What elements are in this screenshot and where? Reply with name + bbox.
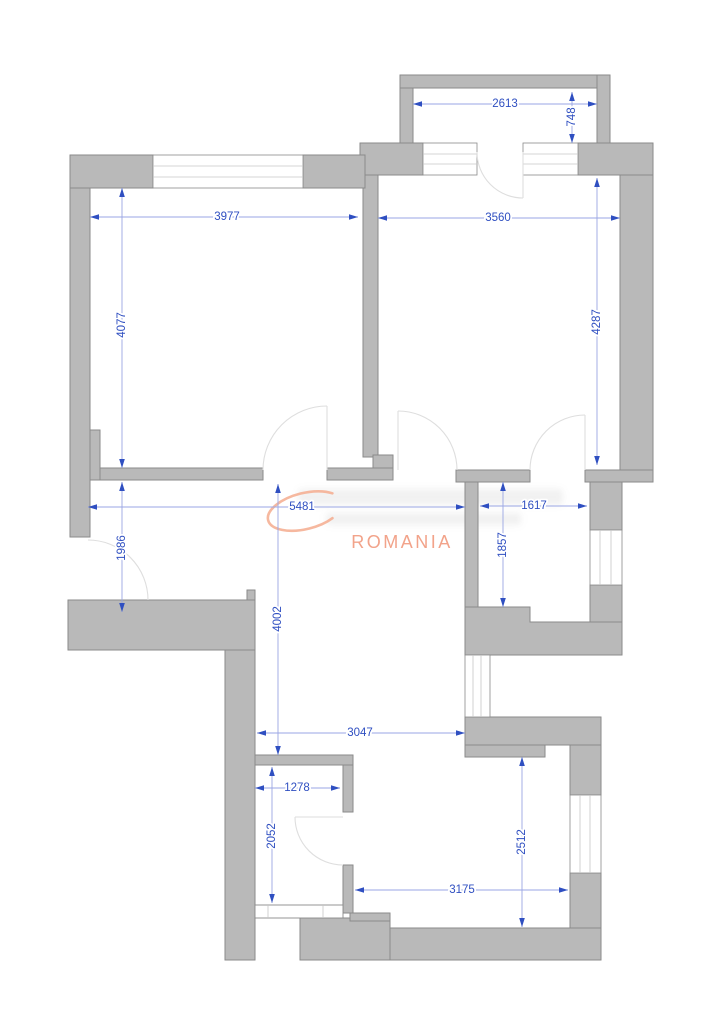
dimension-annotations: 2613748397735604077428754811617198618574… [88,92,620,927]
dimension-label: 4002 [272,606,284,632]
dimension-748: 748 [566,92,578,143]
dimension-3560: 3560 [378,212,620,224]
wall-right-outer [620,175,653,470]
door-small-room [295,817,343,865]
dimension-4287: 4287 [591,178,603,465]
wall-middle-partition-step [373,455,393,468]
window-small-room [255,905,343,918]
wall-bath-top-left [456,470,530,482]
wall-bath-right-lower [590,585,622,622]
wall-balcony-top [400,75,610,88]
dimension-3977: 3977 [90,211,358,223]
wall-bottom-main [390,928,601,960]
watermark-brand: ROMANIA [351,532,453,552]
wall-bath-right-upper [590,482,622,530]
dimension-label: 5481 [289,501,315,513]
wall-top-right-corner [578,143,653,175]
wall-left-step [90,430,100,480]
dimension-3047: 3047 [257,727,465,739]
dimension-label: 2052 [266,823,278,849]
dimension-label: 4077 [116,312,128,338]
wall-small-room-top [255,755,353,765]
wall-hall-step-bar [68,600,255,650]
wall-middle-partition [363,175,378,457]
window-balcony-right [523,143,578,175]
wall-left-outer-lower [225,650,255,960]
window-bathroom [590,530,622,585]
window-below-bathroom [465,655,490,717]
wall-left-outer-upper [70,188,90,537]
wall-br-right-lower [570,873,601,928]
wall-top-right-room-left-seg [360,143,423,175]
wall-balcony-right [597,75,610,143]
dimension-label: 2512 [516,829,528,855]
window-bottom-right-room [570,795,601,873]
dimension-label: 1617 [521,500,547,512]
door-balcony [477,152,523,198]
dimension-4002: 4002 [272,484,284,755]
dimension-label: 3560 [485,212,511,224]
door-hall-to-left-room [263,406,327,470]
windows [153,143,622,918]
dimension-2512: 2512 [516,757,528,927]
dimension-label: 748 [566,107,578,126]
wall-small-room-right-upper [343,765,353,812]
window-balcony-left [423,143,477,175]
wall-top-left-corner [70,155,153,188]
dimension-label: 3047 [347,727,373,739]
dimension-3175: 3175 [355,884,568,896]
dimension-label: 1857 [497,532,509,558]
window-top-left-room [153,155,303,188]
dimension-4077: 4077 [116,188,128,468]
dimension-2052: 2052 [266,767,278,903]
wall-bottom-under-window [300,918,390,960]
dimension-label: 1986 [116,535,128,561]
wall-middle-partition-foot [327,468,393,480]
wall-br-top-strip [465,745,545,757]
floor-plan-page: ROMANIA 26137483977356040774287548116171… [0,0,724,1024]
wall-small-room-right-lower [343,865,353,913]
wall-bottom-step [350,913,390,921]
dimension-1986: 1986 [116,482,128,612]
dimension-label: 3175 [449,884,475,896]
door-hall-to-right-room [398,411,457,470]
wall-bath-left [465,482,478,607]
wall-br-right-upper [570,745,601,795]
wall-br-top [465,717,601,745]
wall-top-left-room-bottom [100,468,263,480]
door-bathroom [530,415,585,470]
dimension-label: 4287 [591,309,603,335]
dimension-label: 3977 [214,211,240,223]
wall-top-left-room-right-seg [303,155,365,188]
dimension-label: 2613 [492,98,518,110]
floor-plan: ROMANIA 26137483977356040774287548116171… [0,0,724,1024]
dimension-label: 1278 [284,782,310,794]
dimension-1278: 1278 [255,782,340,794]
wall-bath-top-right [585,470,653,482]
